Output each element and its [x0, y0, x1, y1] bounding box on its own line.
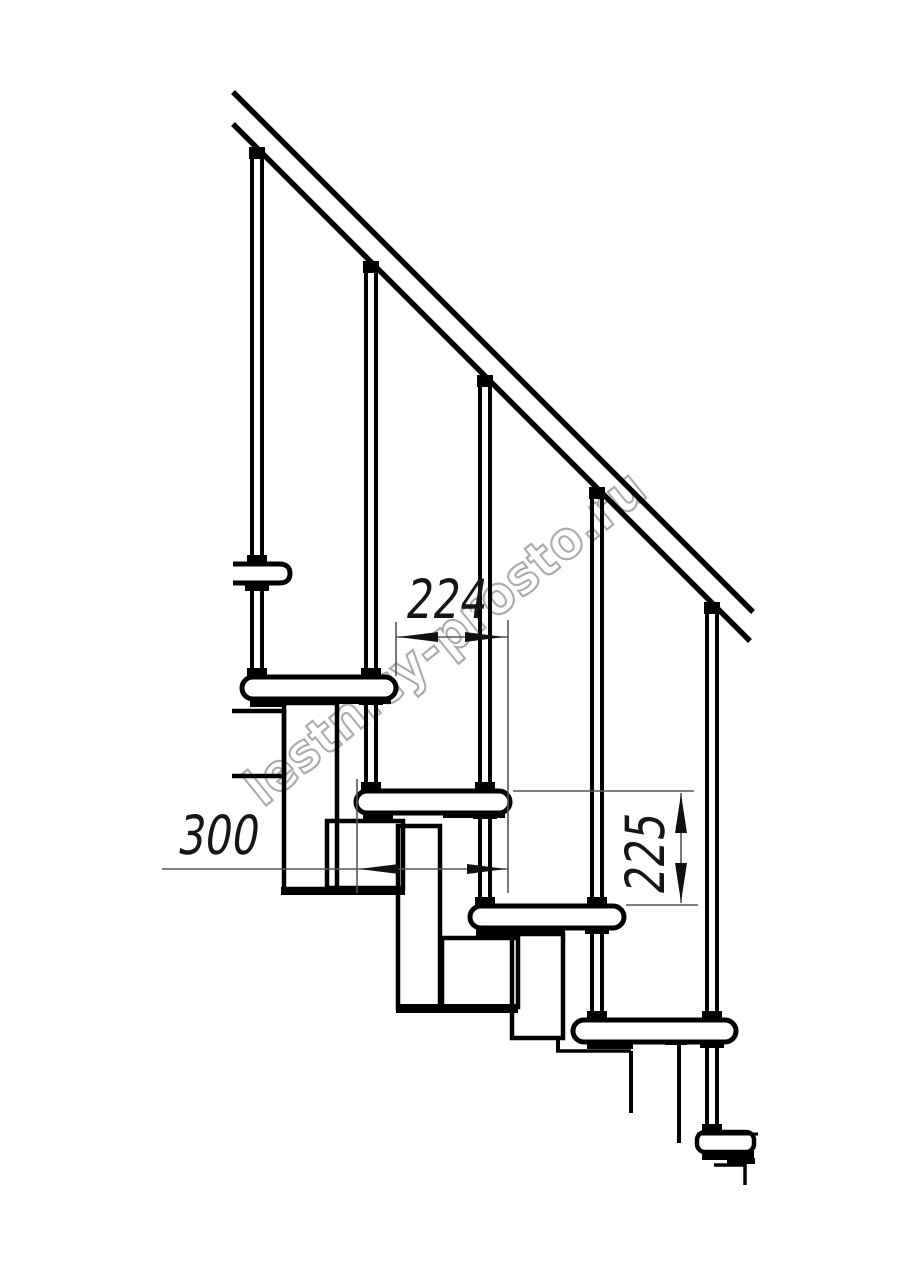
under-tread-bar [665, 1040, 687, 1045]
under-tread-bar [250, 699, 282, 707]
baluster-base [587, 897, 607, 906]
arrow-right-icon [467, 864, 506, 874]
module-box-3 [442, 938, 518, 1007]
module-joint-bar [281, 887, 405, 895]
dimension-riser-height: 225 [513, 791, 698, 905]
under-tread-bar [443, 812, 505, 818]
module-joint-bar [396, 1004, 518, 1013]
baluster-foot [697, 1132, 758, 1185]
dimension-label-225: 225 [614, 807, 677, 898]
baluster-1 [249, 147, 265, 556]
under-tread-bar [587, 1042, 633, 1049]
under-tread-bar [476, 929, 565, 936]
dimension-label-224: 224 [402, 568, 493, 631]
baluster-base [702, 1011, 722, 1020]
tread-4 [470, 906, 624, 928]
tread-5 [573, 1020, 736, 1042]
baluster-base [247, 555, 267, 564]
rod-4 [585, 927, 609, 1020]
rod-5 [700, 1041, 724, 1132]
rod-3 [473, 812, 497, 906]
baluster-2 [363, 261, 379, 669]
handrail [233, 92, 753, 641]
arrow-left-icon [359, 864, 399, 874]
baluster-base [475, 782, 495, 791]
rod-1 [245, 584, 269, 677]
tread-2 [242, 677, 396, 699]
handrail-top-line [233, 92, 753, 612]
tread-1 [233, 564, 290, 583]
baluster-base [361, 668, 381, 677]
dimension-label-300: 300 [174, 804, 265, 867]
baluster-5 [704, 602, 720, 1012]
under-tread-bar [363, 813, 393, 821]
tread-3 [356, 791, 510, 813]
lower-floor-break-lines [556, 1040, 679, 1143]
staircase-technical-drawing: lestnicy-prosto.ru [0, 0, 914, 1280]
watermark-text: lestnicy-prosto.ru [233, 458, 658, 818]
under-tread-bar [337, 698, 391, 704]
drawing-canvas: lestnicy-prosto.ru [0, 0, 914, 1280]
